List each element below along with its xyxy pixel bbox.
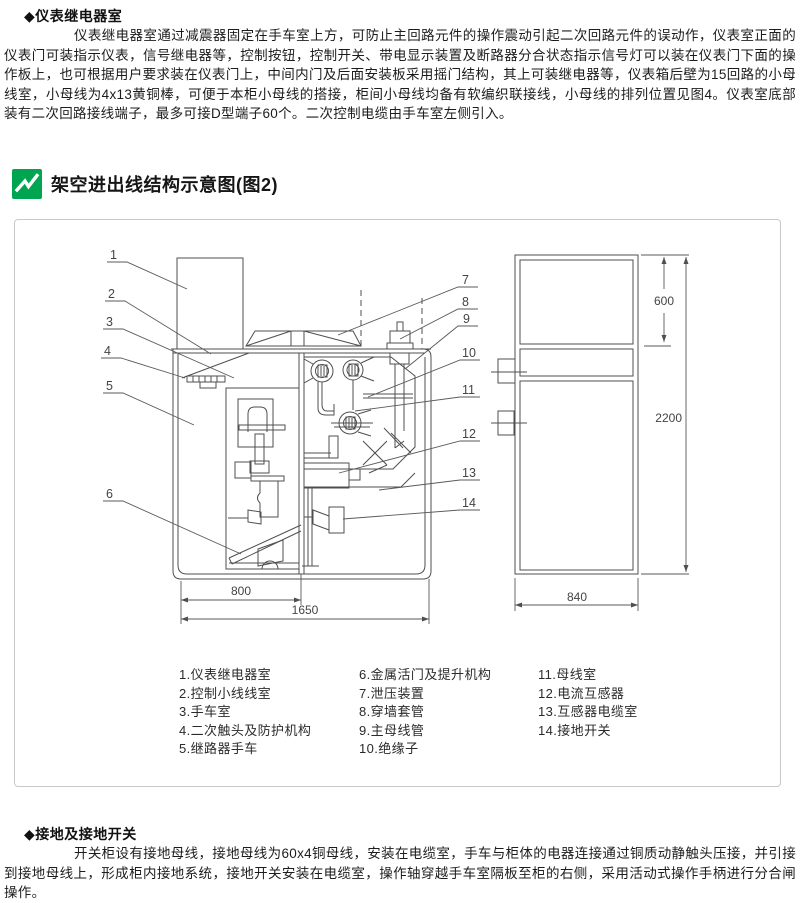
legend-item: 12.电流互感器 bbox=[538, 685, 638, 704]
callout-11: 11 bbox=[462, 383, 475, 397]
legend-item: 10.绝缘子 bbox=[359, 740, 538, 759]
legend-column-2: 6.金属活门及提升机构 7.泄压装置 8.穿墙套管 9.主母线管 10.绝缘子 bbox=[359, 666, 538, 759]
section2-title: ◆接地及接地开关 bbox=[24, 824, 137, 844]
legend-item: 6.金属活门及提升机构 bbox=[359, 666, 538, 685]
dim-2200: 2200 bbox=[655, 411, 682, 425]
legend-item: 5.继路器手车 bbox=[179, 740, 359, 759]
legend-item: 13.互感器电缆室 bbox=[538, 703, 638, 722]
callout-14: 14 bbox=[462, 496, 476, 510]
legend-item: 3.手车室 bbox=[179, 703, 359, 722]
callout-9: 9 bbox=[463, 312, 470, 326]
figure-title: 架空进出线结构示意图(图2) bbox=[51, 171, 278, 197]
callout-2: 2 bbox=[108, 287, 115, 301]
dim-840: 840 bbox=[567, 590, 587, 604]
figure-header: 架空进出线结构示意图(图2) bbox=[12, 169, 278, 199]
callout-8: 8 bbox=[462, 295, 469, 309]
callout-4: 4 bbox=[104, 344, 111, 358]
section1-title: ◆仪表继电器室 bbox=[24, 6, 122, 26]
callout-12: 12 bbox=[462, 427, 476, 441]
legend-item: 1.仪表继电器室 bbox=[179, 666, 359, 685]
callout-10: 10 bbox=[462, 346, 476, 360]
dim-600: 600 bbox=[654, 294, 674, 308]
legend-column-3: 11.母线室 12.电流互感器 13.互感器电缆室 14.接地开关 bbox=[538, 666, 638, 759]
figure-box: 800 1650 600 2200 840 1 2 3 4 5 6 7 bbox=[14, 219, 781, 787]
diamond-bullet-icon: ◆ bbox=[24, 8, 35, 24]
legend-item: 7.泄压装置 bbox=[359, 685, 538, 704]
diamond-bullet-icon: ◆ bbox=[24, 826, 35, 842]
figure-legend: 1.仪表继电器室 2.控制小线线室 3.手车室 4.二次触头及防护机构 5.继路… bbox=[179, 666, 638, 759]
callout-7: 7 bbox=[462, 273, 469, 287]
callout-5: 5 bbox=[106, 379, 113, 393]
lightning-icon bbox=[12, 169, 42, 199]
callout-13: 13 bbox=[462, 466, 476, 480]
section2-title-text: 接地及接地开关 bbox=[35, 826, 137, 842]
callout-3: 3 bbox=[106, 315, 113, 329]
callout-6: 6 bbox=[106, 487, 113, 501]
legend-item: 14.接地开关 bbox=[538, 722, 638, 741]
section1-paragraph: 仪表继电器室通过减震器固定在手车室上方，可防止主回路元件的操作震动引起二次回路元… bbox=[4, 26, 796, 124]
dim-800: 800 bbox=[231, 584, 251, 598]
legend-column-1: 1.仪表继电器室 2.控制小线线室 3.手车室 4.二次触头及防护机构 5.继路… bbox=[179, 666, 359, 759]
legend-item: 9.主母线管 bbox=[359, 722, 538, 741]
legend-item: 2.控制小线线室 bbox=[179, 685, 359, 704]
legend-item: 8.穿墙套管 bbox=[359, 703, 538, 722]
legend-item: 4.二次触头及防护机构 bbox=[179, 722, 359, 741]
callout-1: 1 bbox=[110, 248, 117, 262]
section1-title-text: 仪表继电器室 bbox=[35, 8, 122, 24]
dim-1650: 1650 bbox=[292, 603, 319, 617]
section2-paragraph: 开关柜设有接地母线，接地母线为60x4铜母线，安装在电缆室，手车与柜体的电器连接… bbox=[4, 844, 796, 903]
legend-item: 11.母线室 bbox=[538, 666, 638, 685]
